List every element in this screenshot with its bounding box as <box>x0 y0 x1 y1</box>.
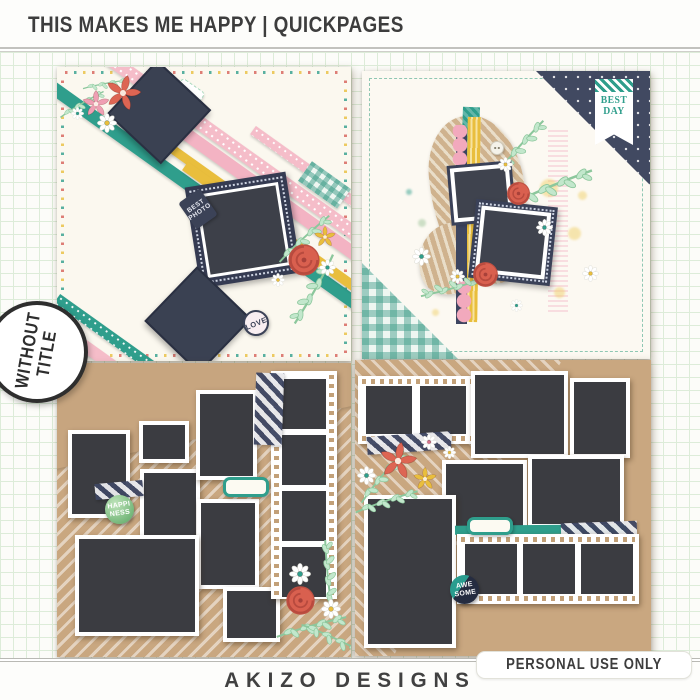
photo-placeholder <box>140 469 200 539</box>
photo-placeholder <box>282 379 326 429</box>
best-day-line1: BEST <box>601 95 628 106</box>
brand-name: AKIZO DESIGNS <box>224 669 476 693</box>
quickpage-bottom-right: AWE SOME <box>355 360 651 656</box>
love-badge-label: LOVE <box>244 315 268 332</box>
paint-splat <box>432 309 439 316</box>
daisy-icon <box>412 247 431 266</box>
page-title: THIS MAKES ME HAPPY | QUICKPAGES <box>28 12 404 38</box>
scrapbook-preview-page: THIS MAKES ME HAPPY | QUICKPAGES BEST PH… <box>0 0 700 700</box>
button-embellishment <box>490 141 504 155</box>
daisy-icon <box>97 113 117 133</box>
daisy-icon <box>510 299 523 312</box>
daisy-icon <box>321 599 341 619</box>
daisy-icon <box>357 466 376 485</box>
paint-splat <box>406 189 412 195</box>
paint-splat <box>418 219 426 227</box>
best-day-line2: DAY <box>603 106 624 117</box>
quickpage-top-right: BEST DAY <box>362 71 650 359</box>
label-inner <box>226 480 266 494</box>
daisy-icon <box>319 259 336 276</box>
daisy-icon <box>443 446 456 459</box>
photo-placeholder <box>75 535 199 636</box>
daisy-icon <box>536 219 553 236</box>
daisy-icon <box>498 157 513 172</box>
daisy-icon <box>421 434 437 450</box>
daisy-icon <box>289 563 311 585</box>
love-badge: LOVE <box>243 310 269 336</box>
rose-icon <box>472 261 499 288</box>
happiness-line2: NESS <box>109 508 130 518</box>
photo-placeholder <box>139 421 189 463</box>
photo-placeholder <box>523 544 575 594</box>
license-text: PERSONAL USE ONLY <box>506 656 662 674</box>
daisy-icon <box>71 107 84 120</box>
photo-placeholder <box>471 371 568 458</box>
yellow-flower-icon <box>313 225 337 249</box>
quickpage-bottom-left: HAPPI NESS <box>57 363 351 657</box>
photo-placeholder <box>581 544 633 594</box>
paint-splat <box>568 227 581 240</box>
awesome-flair-badge: AWE SOME <box>450 575 479 604</box>
teal-label-tab <box>467 517 513 535</box>
photo-placeholder <box>570 378 630 458</box>
photo-placeholder <box>197 499 259 589</box>
happiness-flair-badge: HAPPI NESS <box>105 495 134 524</box>
film-strip <box>457 534 639 604</box>
quickpage-top-left: BEST PHOTO LOVE <box>57 67 351 361</box>
rose-icon <box>506 181 531 206</box>
rose-icon <box>285 585 316 616</box>
pink-ricrac <box>450 125 470 165</box>
photo-placeholder <box>196 390 257 480</box>
daisy-icon <box>271 273 285 287</box>
photo-placeholder <box>282 491 326 541</box>
striped-washi-tape <box>254 373 284 446</box>
banner-stripe-band <box>595 79 633 92</box>
daisy-icon <box>450 269 465 284</box>
photo-placeholder <box>366 386 412 434</box>
photo-placeholder <box>528 455 624 528</box>
dot-border-right <box>344 75 347 353</box>
daisy-icon <box>582 265 599 282</box>
photo-placeholder <box>282 435 326 485</box>
teal-label-tab <box>223 477 269 497</box>
title-divider <box>0 47 700 52</box>
label-inner <box>470 520 510 532</box>
paint-splat <box>554 287 565 298</box>
yellow-flower-icon <box>412 466 438 492</box>
awesome-line2: SOME <box>454 588 477 598</box>
photo-placeholder <box>420 386 466 434</box>
license-badge: PERSONAL USE ONLY <box>476 651 692 679</box>
